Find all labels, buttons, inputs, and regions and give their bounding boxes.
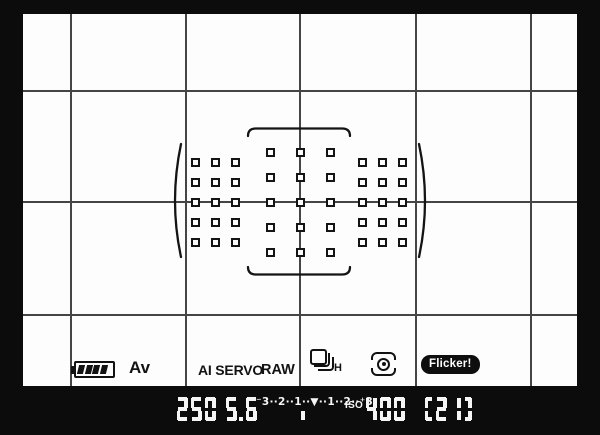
segment-digit [394,397,405,421]
af-point [326,173,335,182]
battery-bar [77,365,85,374]
af-point [231,158,240,167]
viewfinder-frame: Av AI SERVO RAW H Flicker! ⁻3··2··1··▼··… [0,0,600,435]
af-point [378,218,387,227]
burst-count-readout [423,397,473,421]
exposure-meter-scale: ⁻3··2··1··▼··1··2··⁺3 [256,396,350,408]
af-point [211,198,220,207]
af-point [211,178,220,187]
segment-digit [464,397,472,421]
shooting-mode-label: Av [129,358,150,378]
af-point [191,158,200,167]
segment-digit [436,397,447,421]
af-point [231,218,240,227]
af-point [266,148,275,157]
af-point [231,238,240,247]
battery-icon [71,361,111,379]
af-point [191,218,200,227]
af-point [266,198,275,207]
af-point-grid [23,14,577,386]
segment-digit [246,397,257,421]
af-point [326,223,335,232]
af-point [358,198,367,207]
continuous-shooting-high-icon: H [310,349,342,381]
af-point [326,198,335,207]
segment-digit [205,397,216,421]
metering-frame-gap [393,360,398,368]
af-point [358,218,367,227]
battery-bar [99,365,107,374]
metering-frame-gap [369,360,374,368]
segment-digit [191,397,202,421]
segment-digit [226,397,237,421]
segment-digit [177,397,188,421]
af-point [398,218,407,227]
exposure-level-indicator [301,411,305,420]
af-point [296,223,305,232]
segment-digit [450,397,461,421]
af-point [266,173,275,182]
af-point [326,148,335,157]
af-point [266,223,275,232]
iso-label: ISO [345,400,363,411]
evaluative-metering-icon [371,352,396,376]
af-point [358,158,367,167]
aperture-readout [224,397,258,421]
af-point [191,178,200,187]
af-point [398,238,407,247]
af-point [191,238,200,247]
af-point [296,148,305,157]
flicker-warning-badge: Flicker! [421,355,480,374]
af-point [398,178,407,187]
segment-decimal-point [239,417,243,421]
af-point [398,158,407,167]
af-point [326,248,335,257]
segment-digit [380,397,391,421]
battery-body [74,361,115,378]
af-point [231,198,240,207]
af-point [358,238,367,247]
af-point [266,248,275,257]
af-point [378,198,387,207]
af-point [191,198,200,207]
drive-speed-label: H [334,362,342,374]
af-point [398,198,407,207]
af-point [378,178,387,187]
battery-bar [92,365,100,374]
battery-bar [84,365,92,374]
af-point [211,238,220,247]
af-point [231,178,240,187]
af-point [358,178,367,187]
image-quality-label: RAW [261,362,295,378]
af-point [378,238,387,247]
af-point [296,248,305,257]
metering-center-dot [382,362,386,366]
segment-digit [366,397,377,421]
af-mode-label: AI SERVO [198,362,263,378]
segment-digit [425,397,433,421]
iso-value-readout [364,397,406,421]
af-point [296,198,305,207]
af-point [378,158,387,167]
af-point [296,173,305,182]
af-point [211,158,220,167]
af-point [211,218,220,227]
shutter-speed-readout [175,397,217,421]
drive-layer [318,357,334,371]
viewfinder-screen: Av AI SERVO RAW H Flicker! [23,14,577,386]
